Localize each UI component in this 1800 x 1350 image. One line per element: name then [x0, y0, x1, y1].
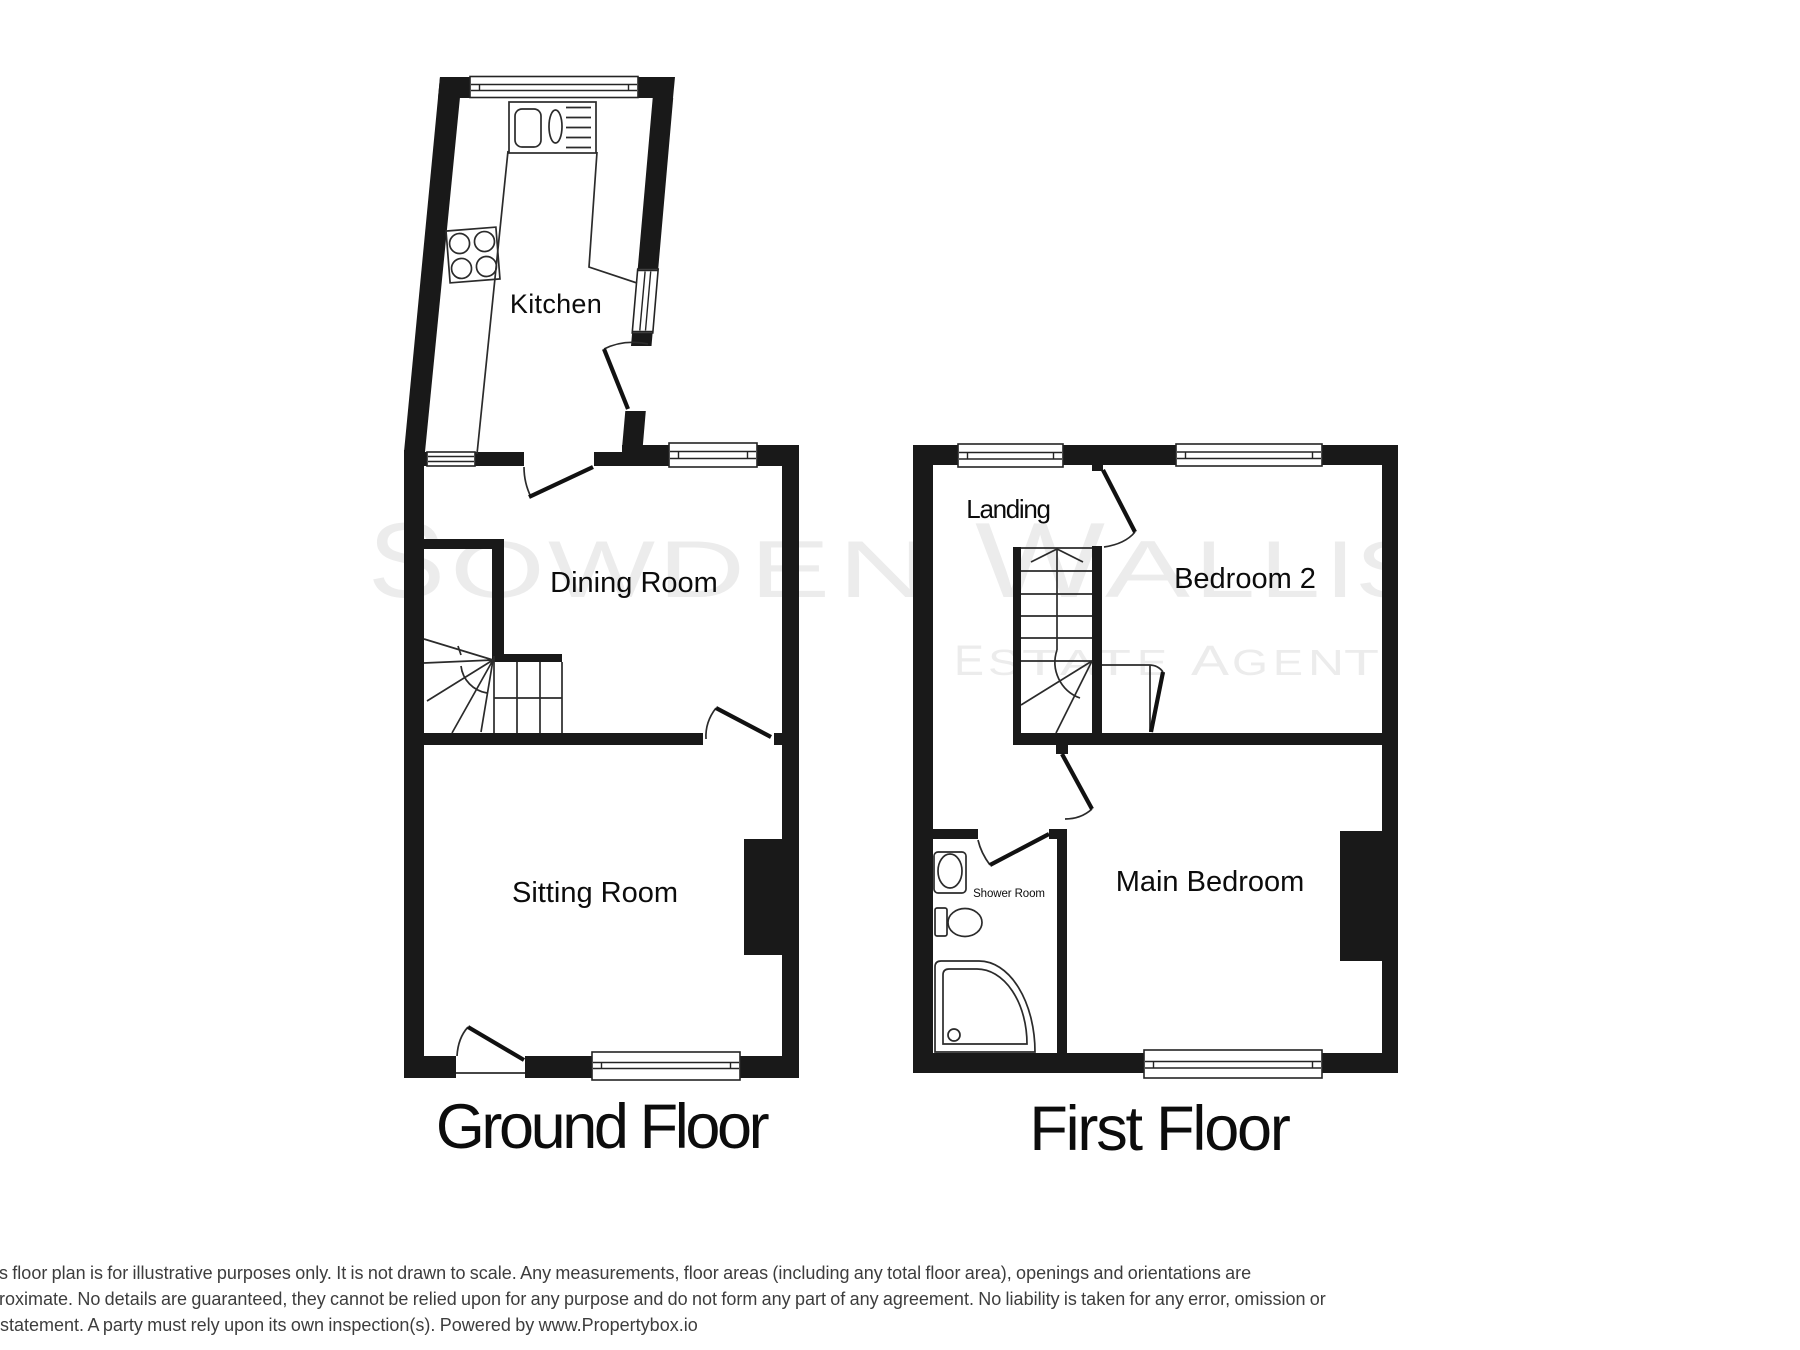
svg-text:N: N [1308, 642, 1344, 683]
svg-text:Main Bedroom: Main Bedroom [1116, 866, 1305, 898]
svg-text:G: G [1232, 642, 1268, 683]
svg-text:E: E [954, 637, 984, 685]
svg-text:approximate. No details are gu: approximate. No details are guaranteed, … [0, 1289, 1326, 1309]
svg-text:This floor plan is for illustr: This floor plan is for illustrative purp… [0, 1263, 1251, 1283]
svg-text:Landing: Landing [966, 494, 1049, 524]
svg-text:Dining Room: Dining Room [550, 567, 718, 599]
svg-text:T: T [1344, 642, 1379, 683]
svg-text:Ground Floor: Ground Floor [436, 1092, 769, 1162]
svg-text:E: E [1273, 642, 1303, 683]
svg-text:I: I [1325, 525, 1355, 615]
svg-text:Kitchen: Kitchen [510, 289, 602, 319]
svg-text:Sitting Room: Sitting Room [512, 877, 678, 909]
svg-text:misstatement. A party must rel: misstatement. A party must rely upon its… [0, 1315, 698, 1335]
svg-text:A: A [1191, 637, 1229, 685]
svg-text:Bedroom 2: Bedroom 2 [1174, 563, 1316, 595]
svg-text:Shower Room: Shower Room [973, 888, 1045, 900]
svg-text:First Floor: First Floor [1029, 1094, 1290, 1164]
svg-text:T: T [1022, 642, 1058, 683]
